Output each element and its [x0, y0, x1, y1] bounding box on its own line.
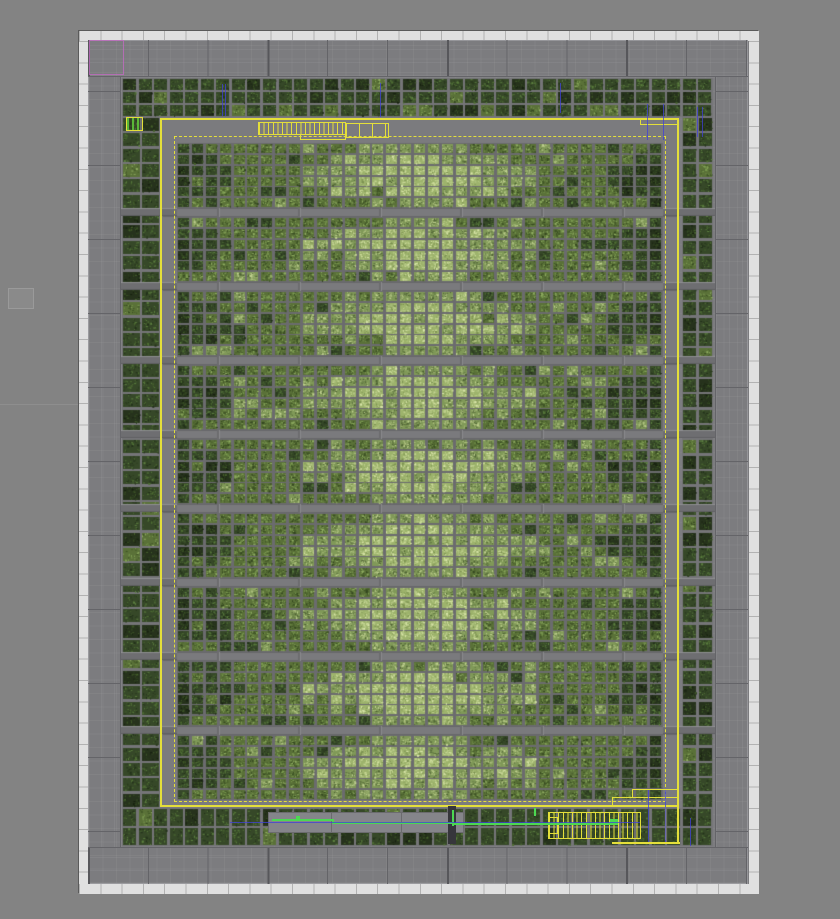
net-highlight-blue: [560, 83, 561, 113]
net-highlight-green: [534, 808, 536, 816]
net-highlight-green: [452, 823, 618, 825]
yellow-line-bottom: [612, 842, 680, 844]
net-highlight-blue: [222, 84, 223, 116]
ring-thick-top-right: [640, 118, 679, 125]
power-ring-inner: [174, 136, 666, 802]
background-grid-square: [8, 288, 34, 309]
selected-pad-outline: [89, 40, 124, 75]
net-highlight-blue: [663, 104, 664, 140]
net-highlight-blue: [647, 104, 648, 140]
layout-viewport[interactable]: [0, 0, 840, 919]
net-highlight-blue: [665, 790, 666, 842]
net-highlight-blue: [380, 83, 381, 117]
net-highlight-blue: [690, 818, 691, 846]
bus-box-top: [345, 123, 389, 138]
net-highlight-blue: [702, 107, 703, 137]
net-highlight-blue: [697, 107, 698, 137]
seal-ring-right: [749, 41, 759, 884]
seal-ring-bottom: [79, 884, 759, 894]
io-pad-col-left: [88, 77, 121, 847]
net-highlight-green: [296, 816, 300, 820]
background-grid-seam: [0, 404, 78, 405]
bus-notch-top: [300, 134, 346, 140]
yellow-vert-bottom-a: [677, 807, 679, 843]
io-pad-row-bottom: [88, 847, 748, 884]
highlighted-cell-top-left: [126, 117, 143, 131]
ring-step-bottom-right: [612, 797, 679, 807]
net-highlight-blue: [230, 822, 640, 823]
io-pad-row-top: [88, 40, 748, 77]
bus-box-bottom-right: [548, 817, 558, 834]
net-highlight-blue: [648, 790, 649, 842]
ring-step2-bottom-right: [632, 789, 679, 798]
net-highlight-green: [272, 819, 332, 821]
io-pad-col-right: [715, 77, 748, 847]
net-highlight-blue: [225, 84, 226, 116]
bus-comb-bottom-right: [548, 812, 641, 839]
